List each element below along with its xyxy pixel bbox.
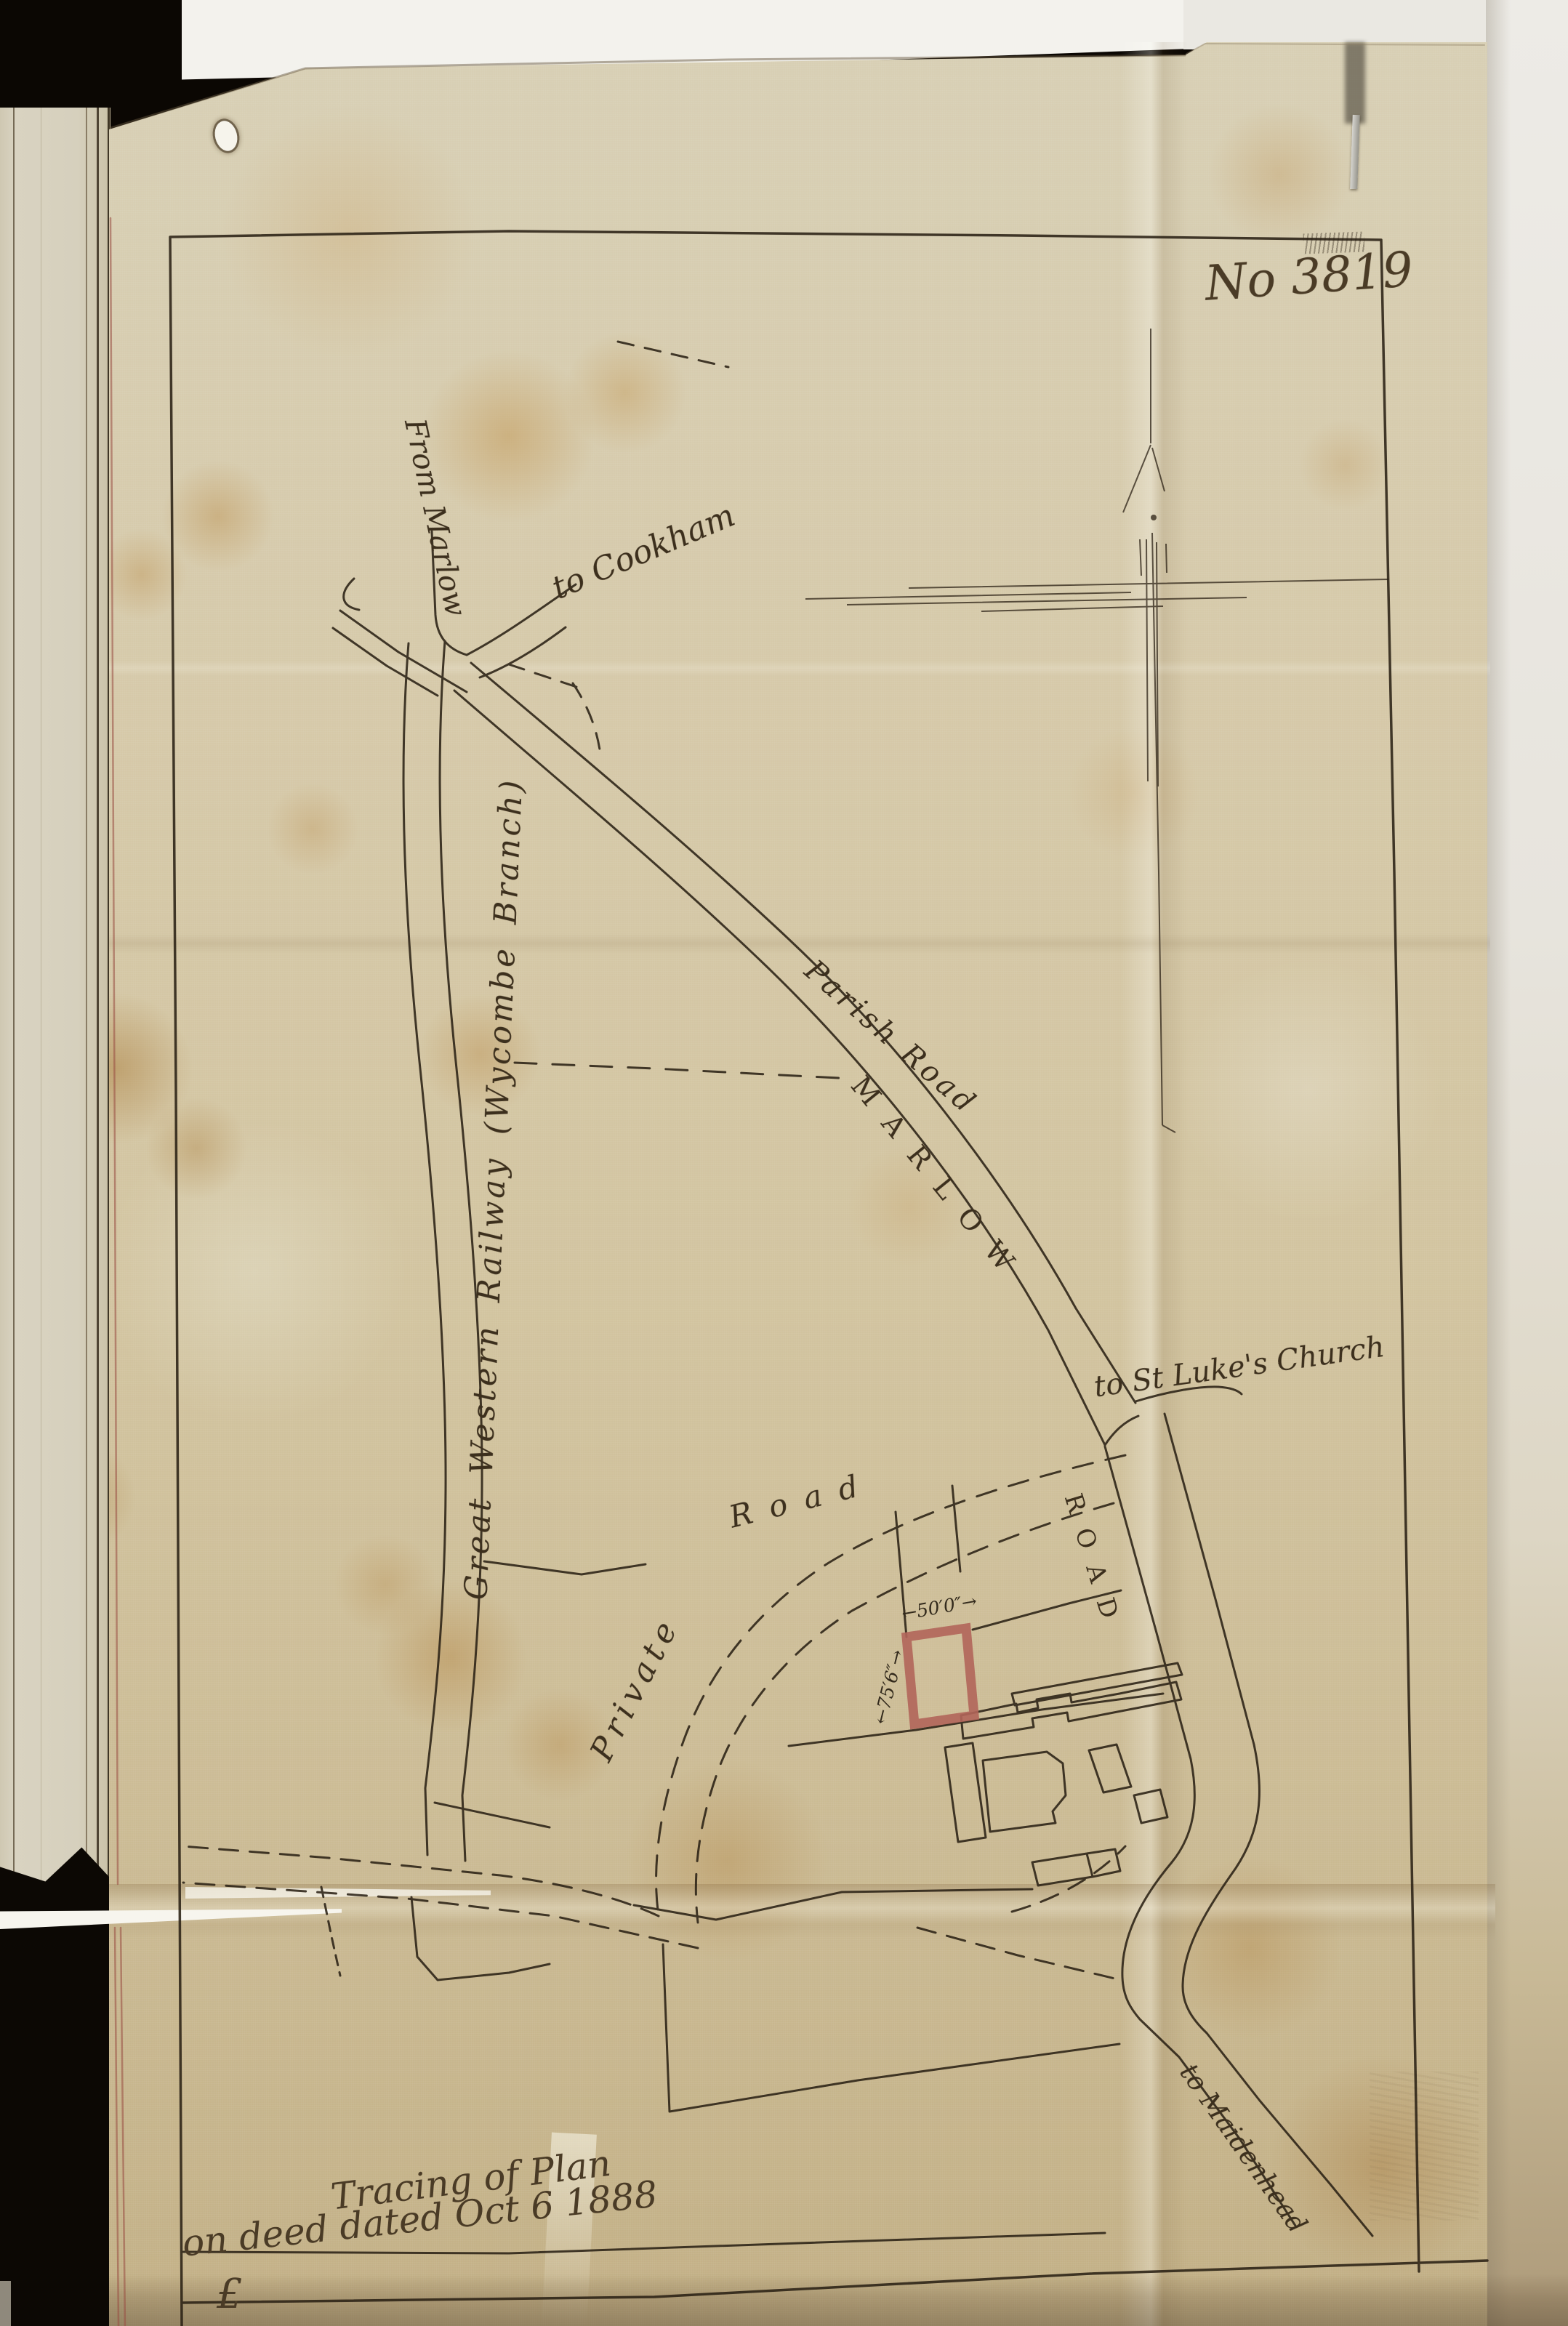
parish-road-line <box>454 663 1135 1445</box>
cloth-red-edge <box>110 218 125 2326</box>
railway-line <box>403 641 482 1861</box>
cloth-torn-edge <box>1186 44 1484 54</box>
dashed-boundary-short <box>321 1887 340 1976</box>
dashed-track-west <box>183 1846 698 1948</box>
docket-flourish: £ <box>217 2271 243 2318</box>
building-outline <box>1089 1745 1131 1792</box>
building-outline <box>961 1682 1181 1739</box>
plan-linework <box>0 0 1568 2326</box>
dashed-track-southeast <box>917 1846 1125 1980</box>
field-boundary-dashed <box>515 1063 852 1079</box>
field-boundary <box>484 1561 646 1574</box>
highlighted-plot <box>906 1628 974 1724</box>
north-point-symbol <box>805 329 1388 1132</box>
scanned-deed-plan: No 3819 From Marlow to Cookham Great Wes… <box>0 0 1568 2326</box>
building-outline <box>983 1752 1066 1832</box>
building-outline <box>1134 1790 1167 1823</box>
road-to-maidenhead <box>1105 1414 1372 2236</box>
plan-border <box>170 231 1487 2326</box>
cloth-torn-edge <box>110 55 1185 128</box>
building-outline <box>1032 1849 1120 1886</box>
building-outline <box>945 1743 986 1842</box>
